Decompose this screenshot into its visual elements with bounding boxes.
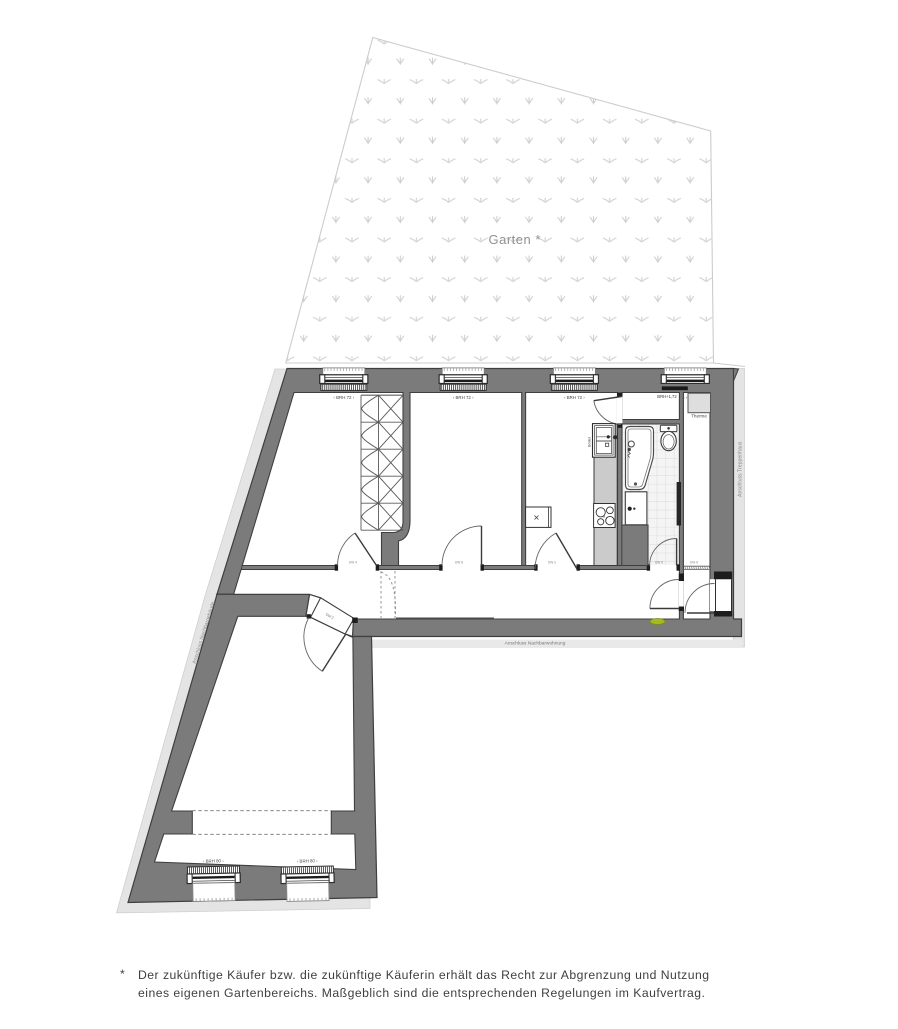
svg-text:DW 2: DW 2	[548, 560, 556, 564]
svg-text:‹ ›: ‹ ›	[683, 395, 688, 400]
svg-text:Therme: Therme	[691, 414, 707, 419]
svg-text:‹ BRH 72 ›: ‹ BRH 72 ›	[564, 395, 585, 400]
svg-text:DW 4: DW 4	[349, 560, 357, 564]
svg-text:DW 5: DW 5	[655, 560, 663, 564]
svg-text:Boiler: Boiler	[587, 436, 592, 447]
svg-text:‹ BRH 80 ›: ‹ BRH 80 ›	[203, 858, 224, 863]
svg-text:Anschluss Nachbarwohnung: Anschluss Nachbarwohnung	[505, 640, 566, 646]
svg-text:DW 8: DW 8	[455, 560, 463, 564]
svg-text:‹ BRH 72 ›: ‹ BRH 72 ›	[453, 395, 474, 400]
svg-text:‹ BRH 72 ›: ‹ BRH 72 ›	[333, 395, 354, 400]
svg-text:BRH+1,72: BRH+1,72	[657, 394, 677, 399]
svg-text:DW 6: DW 6	[690, 560, 698, 564]
svg-text:‹ BRH 80 ›: ‹ BRH 80 ›	[297, 858, 318, 863]
svg-text:Anschluss Treppenhaus: Anschluss Treppenhaus	[738, 441, 744, 497]
svg-text:Garten *: Garten *	[489, 232, 541, 247]
